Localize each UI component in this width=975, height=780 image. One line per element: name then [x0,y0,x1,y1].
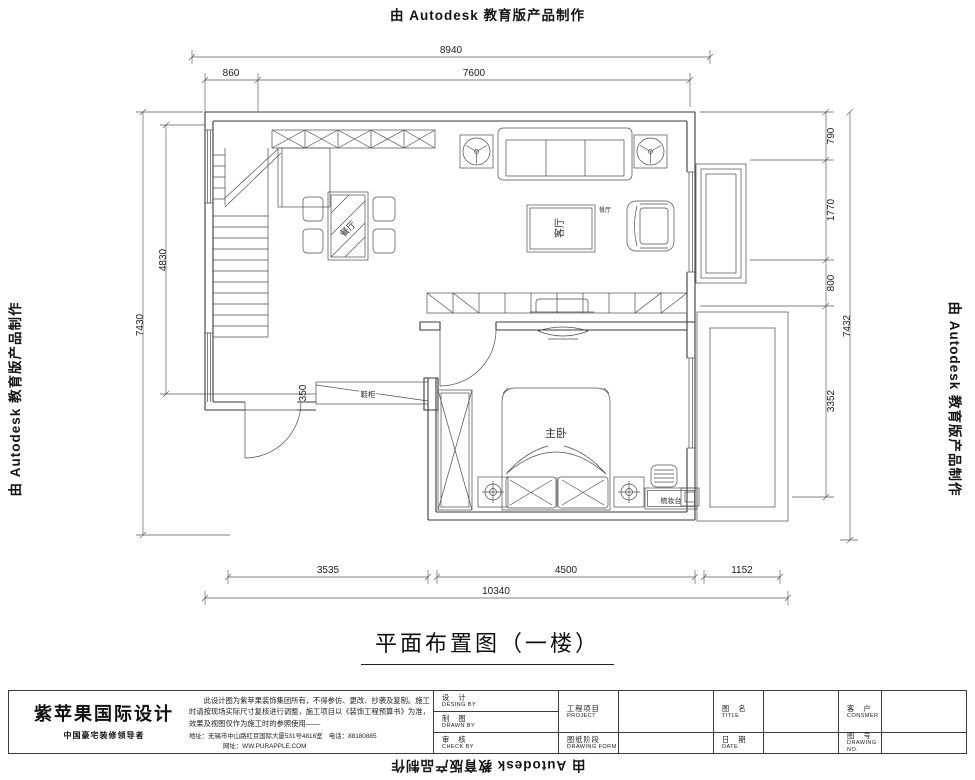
field-drawn-by: 制 图 DRAWN BY [433,712,558,732]
dim-left-outer: 7430 [135,313,146,336]
staircase [213,148,330,337]
dining-room-label: 餐厅 [337,218,358,239]
dimensions-bottom: 3535 4500 1152 10340 [202,565,791,605]
dim-bottom-3: 1152 [731,565,753,576]
living-room-label: 客厅 [553,218,566,238]
wardrobe [438,390,472,510]
field-checked-by: 审 核 CHECK BY [433,733,558,752]
field-drawing-form: 图纸阶段 DRAWING FORM [558,733,618,752]
nightstand-left [478,477,508,507]
company-address: 地址：无锡市中山路红豆国际大厦531号4816室 电话：88180885 [189,731,435,740]
value-drawing-form [618,733,713,752]
top-cabinet [272,130,435,148]
field-customer: 客 户 CONSMER [838,691,881,732]
plan-title-text: 平面布置图（一楼） [361,626,614,665]
dim-right-3: 800 [826,274,837,291]
plant-left [460,135,493,168]
shoe-cabinet: 鞋柜 [316,382,428,404]
copyright-notice: 此设计图为紫苹果装饰集团所有，不得参仿、更改、抄袭及复制。施工时请按现场实际尺寸… [189,695,435,750]
dim-bottom-overall: 10340 [482,586,510,597]
living-side-label: 餐厅 [599,206,611,214]
company-block: 紫苹果国际设计 中国豪宅装修领导者 [23,700,185,741]
dimensions-top: 8940 860 7600 [189,45,713,112]
dim-top-right: 7600 [463,68,486,79]
dressing-stool [651,465,677,487]
title-block: 紫苹果国际设计 中国豪宅装修领导者 此设计图为紫苹果装饰集团所有，不得参仿、更改… [8,690,967,754]
armchair [627,201,674,251]
company-website: 网址：WW.PURAPPLE.COM [189,741,435,750]
terrace [681,312,788,521]
dim-right-2: 1770 [826,198,837,221]
value-drawing-no [881,733,966,752]
dim-top-overall: 8940 [440,45,463,56]
dim-bottom-2: 4500 [555,565,578,576]
dim-right-1: 790 [826,127,837,144]
field-project: 工程项目 PROJECT [558,691,618,732]
walls [205,112,695,520]
value-customer [881,691,966,732]
value-date [763,733,838,752]
notice-text: 此设计图为紫苹果装饰集团所有，不得参仿、更改、抄袭及复制。施工时请按现场实际尺寸… [189,695,435,729]
master-bedroom-label: 主卧 [545,427,567,440]
dressing-table-label: 梳妆台 [661,496,682,505]
plan-title: 平面布置图（一楼） [0,626,975,665]
dim-right-4: 3352 [826,389,837,412]
dim-shoe-depth: 350 [298,384,309,401]
shoe-cabinet-label: 鞋柜 [361,389,376,399]
company-name: 紫苹果国际设计 [23,700,185,726]
dim-left-inner: 4830 [158,248,169,271]
field-drawing-no: 图 号 DRAWING NO. [838,733,881,752]
tv-cabinet [427,293,687,339]
entry-door [245,402,301,458]
balcony-bay-window [696,164,746,283]
plant-right [634,135,667,168]
dim-top-left: 860 [223,68,240,79]
drawing-sheet: 由 Autodesk 教育版产品制作 由 Autodesk 教育版产品制作 由 … [0,0,975,780]
field-title: 图 名 TITLE [713,691,763,732]
dining-table: 餐厅 [303,192,395,260]
dimensions-left: 7430 4830 350 [135,109,316,538]
floor-plan: 餐厅 客厅 餐厅 [0,0,975,680]
field-date: 日 期 DATE [713,733,763,752]
bedroom-door [440,330,496,386]
coffee-table: 客厅 [527,205,595,252]
autodesk-stamp-bottom: 由 Autodesk 教育版产品制作 [390,757,585,777]
value-project [618,691,713,732]
value-title [763,691,838,732]
field-designed-by: 设 计 DESING BY [433,691,558,711]
nightstand-right [614,477,644,507]
sofa [498,128,632,180]
dim-right-overall: 7432 [842,314,853,337]
company-slogan: 中国豪宅装修领导者 [23,730,185,741]
bed: 主卧 [502,388,610,510]
dim-bottom-1: 3535 [317,565,340,576]
